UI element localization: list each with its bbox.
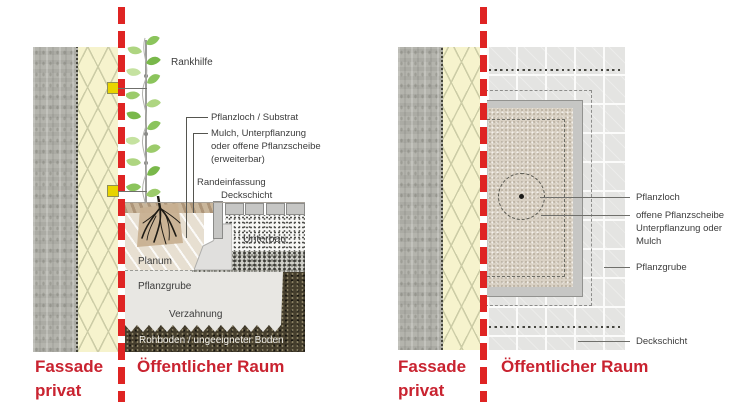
ground-surface-line xyxy=(125,202,305,203)
leader-line-mulch xyxy=(193,133,194,213)
leader-line-pflanzgrube xyxy=(604,267,630,268)
zone-fassade-line: Fassade xyxy=(35,355,103,379)
dotted-line-top xyxy=(489,69,622,71)
label-unterbau: Unterbau xyxy=(243,233,286,246)
label-deckschicht-plan: Deckschicht xyxy=(636,335,687,348)
zone-oeffentlicher-raum-left: Öffentlicher Raum xyxy=(137,355,284,379)
label-randeinfassung: Randeinfassung xyxy=(197,176,266,189)
paving-block xyxy=(266,203,285,215)
label-verzahnung: Verzahnung xyxy=(169,308,222,321)
zone-privat-line: privat xyxy=(398,379,466,403)
label-pflanzloch-plan: Pflanzloch xyxy=(636,191,680,204)
anchor-rod xyxy=(118,88,147,89)
boundary-line-plan xyxy=(480,7,487,402)
label-mulch-line2: oder offene Pflanzscheibe xyxy=(211,140,321,153)
zone-oeffentlicher-raum-right: Öffentlicher Raum xyxy=(501,355,648,379)
dotted-line-bottom xyxy=(489,326,622,328)
label-scheibe: offene Pflanzscheibe Unterpflanzung oder… xyxy=(636,209,724,248)
root-ball xyxy=(132,196,192,254)
leader-line-pflanzloch-plan xyxy=(540,197,630,198)
label-pflanzgrube-plan: Pflanzgrube xyxy=(636,261,687,274)
label-mulch-line1: Mulch, Unterpflanzung xyxy=(211,127,321,140)
paving-block xyxy=(245,203,264,215)
label-deckschicht: Deckschicht xyxy=(221,189,272,202)
plant-center-dot xyxy=(519,194,524,199)
anchor-rod xyxy=(118,191,147,192)
label-pflanzgrube-section: Pflanzgrube xyxy=(138,280,191,293)
label-mulch-line3: (erweiterbar) xyxy=(211,153,321,166)
label-pflanzloch-substrat: Pflanzloch / Substrat xyxy=(211,111,298,124)
leader-line-pflanzloch xyxy=(186,117,208,118)
label-scheibe-line1: offene Pflanzscheibe xyxy=(636,209,724,222)
paving-blocks xyxy=(225,203,305,215)
label-rankhilfe: Rankhilfe xyxy=(171,56,213,69)
insulation-layer-plan xyxy=(443,47,480,350)
zone-fassade-privat-left: Fassade privat xyxy=(35,355,103,403)
label-rohboden: Rohboden / ungeeigneter Boden xyxy=(139,334,284,347)
leader-line-deckschicht xyxy=(578,341,630,342)
boundary-line xyxy=(118,7,125,402)
planum-line xyxy=(125,270,193,271)
label-planum: Planum xyxy=(138,255,172,268)
zone-fassade-privat-right: Fassade privat xyxy=(398,355,466,403)
concrete-wall-plan xyxy=(398,47,443,350)
paving-block xyxy=(225,203,244,215)
curb-block xyxy=(213,201,223,239)
zone-fassade-line: Fassade xyxy=(398,355,466,379)
label-scheibe-line3: Mulch xyxy=(636,235,724,248)
leader-line-scheibe xyxy=(541,215,630,216)
label-scheibe-line2: Unterpflanzung oder xyxy=(636,222,724,235)
concrete-wall xyxy=(33,47,78,352)
paving-block xyxy=(286,203,305,215)
climbing-plant xyxy=(126,36,172,208)
zone-privat-line: privat xyxy=(35,379,103,403)
leader-line-pflanzloch xyxy=(186,117,187,238)
label-mulch: Mulch, Unterpflanzung oder offene Pflanz… xyxy=(211,127,321,166)
leader-line-mulch xyxy=(193,133,208,134)
diagram-canvas: Rankhilfe Pflanzloch / Substrat Mulch, U… xyxy=(0,0,739,419)
